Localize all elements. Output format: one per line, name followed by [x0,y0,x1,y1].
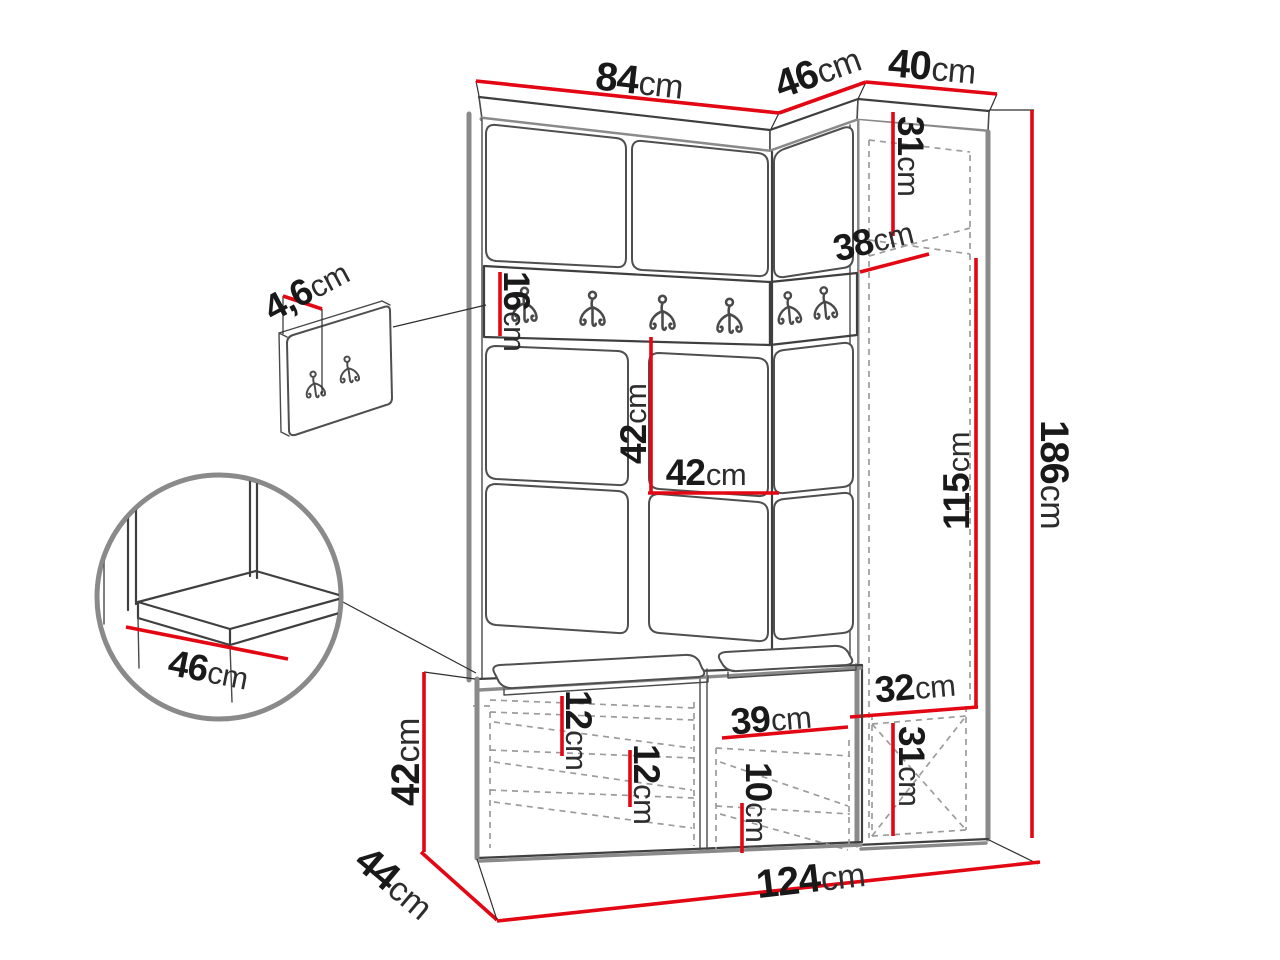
upholstered-panel [649,494,768,641]
furniture-dimension-diagram: 84cm 46cm 40cm 31cm 38cm 4,6cm 16cm 42cm… [0,0,1280,960]
dimension-label-bench-compartment-width: 39cm [729,695,813,743]
dimension-label-corner-depth: 46cm [769,36,867,107]
dimension-label-total-width: 124cm [754,851,867,907]
upholstered-panel [774,343,853,493]
dimension-label-bench-shelf-gap-bottom: 10cm [738,762,779,842]
callout-line-seat-detail [341,601,476,673]
diagram-canvas: 84cm 46cm 40cm 31cm 38cm 4,6cm 16cm 42cm… [0,0,1280,960]
dimension-line-bench-height [424,672,475,852]
upholstered-panel [774,493,853,639]
dimension-label-hook-rail-height: 16cm [496,271,537,351]
dimension-label-upper-compartment-height: 31cm [890,116,931,196]
dimension-label-bench-depth: 44cm [347,838,443,928]
dimension-label-panel-height: 42cm [613,384,654,464]
upholstered-panel [486,346,628,485]
dimension-label-right-width: 40cm [886,41,977,92]
dimension-label-panel-width: 42cm [666,452,746,493]
top-cabinet-door-left [486,125,626,267]
dimension-label-bench-height: 42cm [384,718,428,806]
dimension-label-bench-shelf-gap-middle: 12cm [626,744,667,824]
wardrobe-front [469,114,857,680]
callout-line-wall-panel [393,305,486,327]
upholstered-panel [486,484,628,633]
dimension-label-lower-compartment-height: 31cm [891,726,932,806]
dimension-label-bench-shelf-gap-top: 12cm [558,690,599,770]
dimension-label-total-height: 186cm [1032,420,1076,529]
top-cabinet-door-right [632,141,768,276]
dimension-label-top-width: 84cm [593,54,685,107]
dimension-label-wall-panel-thickness: 4,6cm [257,251,356,329]
dimension-line-total-height [989,110,1038,864]
dimension-label-side-cabinet-inner-height: 115cm [936,432,977,530]
